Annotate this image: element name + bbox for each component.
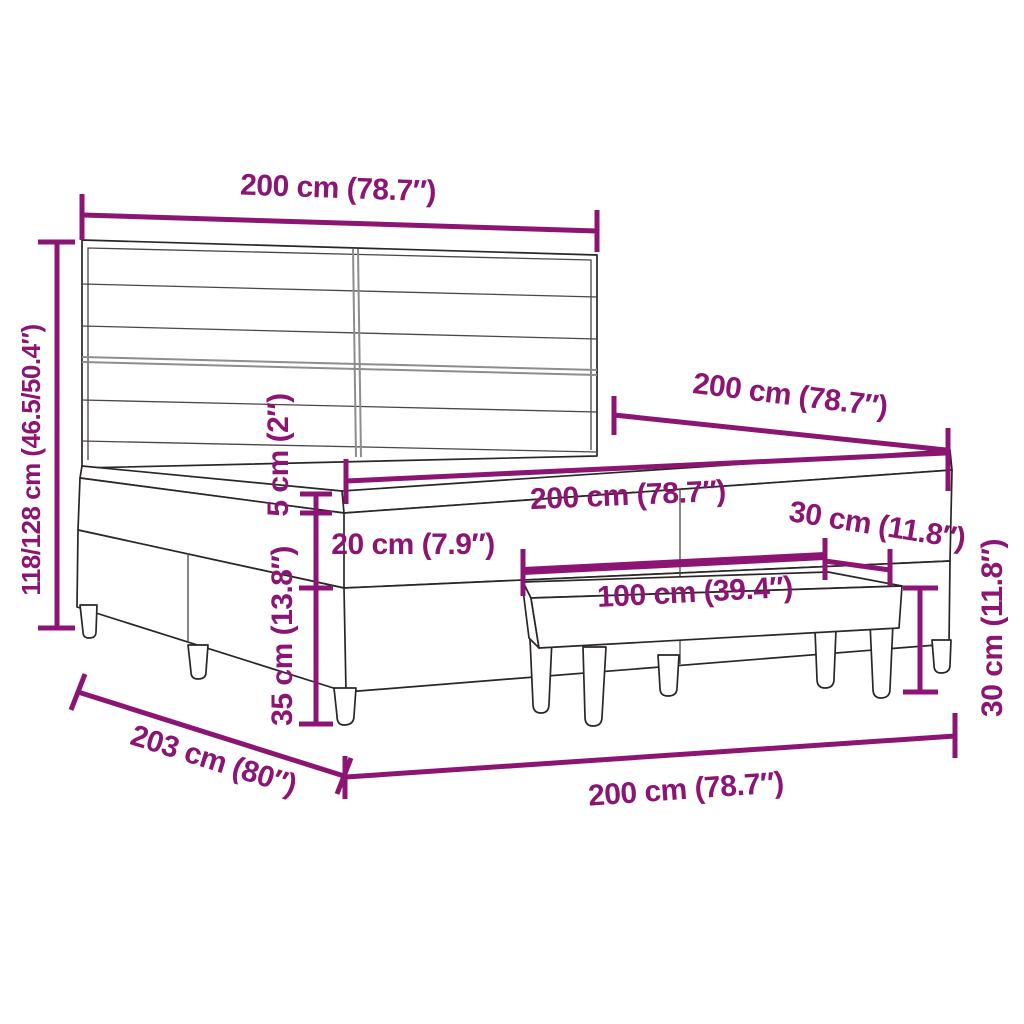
bed-leg	[188, 645, 208, 679]
bed-dimension-diagram: 200 cm (78.7″) 118/128 cm (46.5/50.4″) 2…	[0, 0, 1024, 1024]
dim-bench-height-label: 30 cm (11.8″)	[976, 539, 1009, 717]
headboard	[82, 240, 597, 468]
dim-bed-length: 200 cm (78.7″)	[614, 367, 946, 450]
headboard-panel	[82, 240, 597, 468]
dim-total-height: 118/128 cm (46.5/50.4″)	[16, 242, 75, 628]
dim-floor-width-label: 200 cm (78.7″)	[587, 766, 785, 813]
dim-floor-width: 200 cm (78.7″)	[345, 713, 955, 813]
bench-leg	[815, 630, 836, 688]
bed-leg	[80, 605, 97, 638]
bench-leg	[530, 639, 552, 713]
dim-total-height-label: 118/128 cm (46.5/50.4″)	[16, 324, 46, 595]
dim-frame-height-label: 35 cm (13.8″)	[266, 546, 299, 726]
dim-box-height-label: 20 cm (7.9″)	[331, 528, 494, 561]
dim-bed-length-label: 200 cm (78.7″)	[691, 367, 889, 424]
dim-headboard-width-label: 200 cm (78.7″)	[240, 169, 437, 209]
bench-leg	[583, 647, 606, 726]
dim-topper-thickness-label: 5 cm (2″)	[262, 393, 295, 516]
bed-leg	[334, 688, 356, 725]
bench-leg	[658, 655, 679, 696]
dim-headboard-width: 200 cm (78.7″)	[82, 169, 597, 252]
dim-floor-depth: 203 cm (80″)	[71, 674, 351, 802]
bed-drawing	[77, 240, 952, 726]
diagram-canvas: 200 cm (78.7″) 118/128 cm (46.5/50.4″) 2…	[0, 0, 1024, 1024]
dim-floor-depth-label: 203 cm (80″)	[127, 719, 301, 802]
bed-leg	[932, 640, 951, 673]
bench-leg	[870, 623, 893, 698]
